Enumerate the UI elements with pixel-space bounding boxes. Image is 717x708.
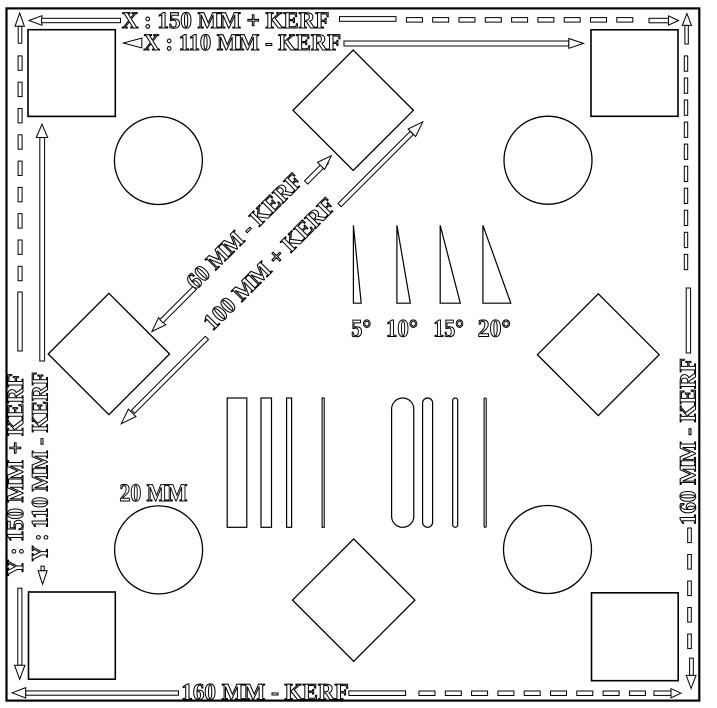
svg-text:15°: 15° bbox=[433, 315, 464, 342]
svg-text:10°: 10° bbox=[386, 315, 418, 342]
svg-text:5°: 5° bbox=[351, 315, 371, 342]
svg-text:160 MM - KERF: 160 MM - KERF bbox=[676, 358, 702, 525]
svg-text:160 MM - KERF: 160 MM - KERF bbox=[181, 679, 348, 705]
svg-text:Y : 150 MM + KERF: Y : 150 MM + KERF bbox=[3, 374, 29, 577]
svg-text:20 MM: 20 MM bbox=[120, 480, 188, 507]
svg-text:X : 110 MM - KERF: X : 110 MM - KERF bbox=[144, 30, 342, 56]
svg-text:20°: 20° bbox=[478, 315, 511, 342]
svg-text:Y : 110 MM - KERF: Y : 110 MM - KERF bbox=[28, 372, 54, 561]
